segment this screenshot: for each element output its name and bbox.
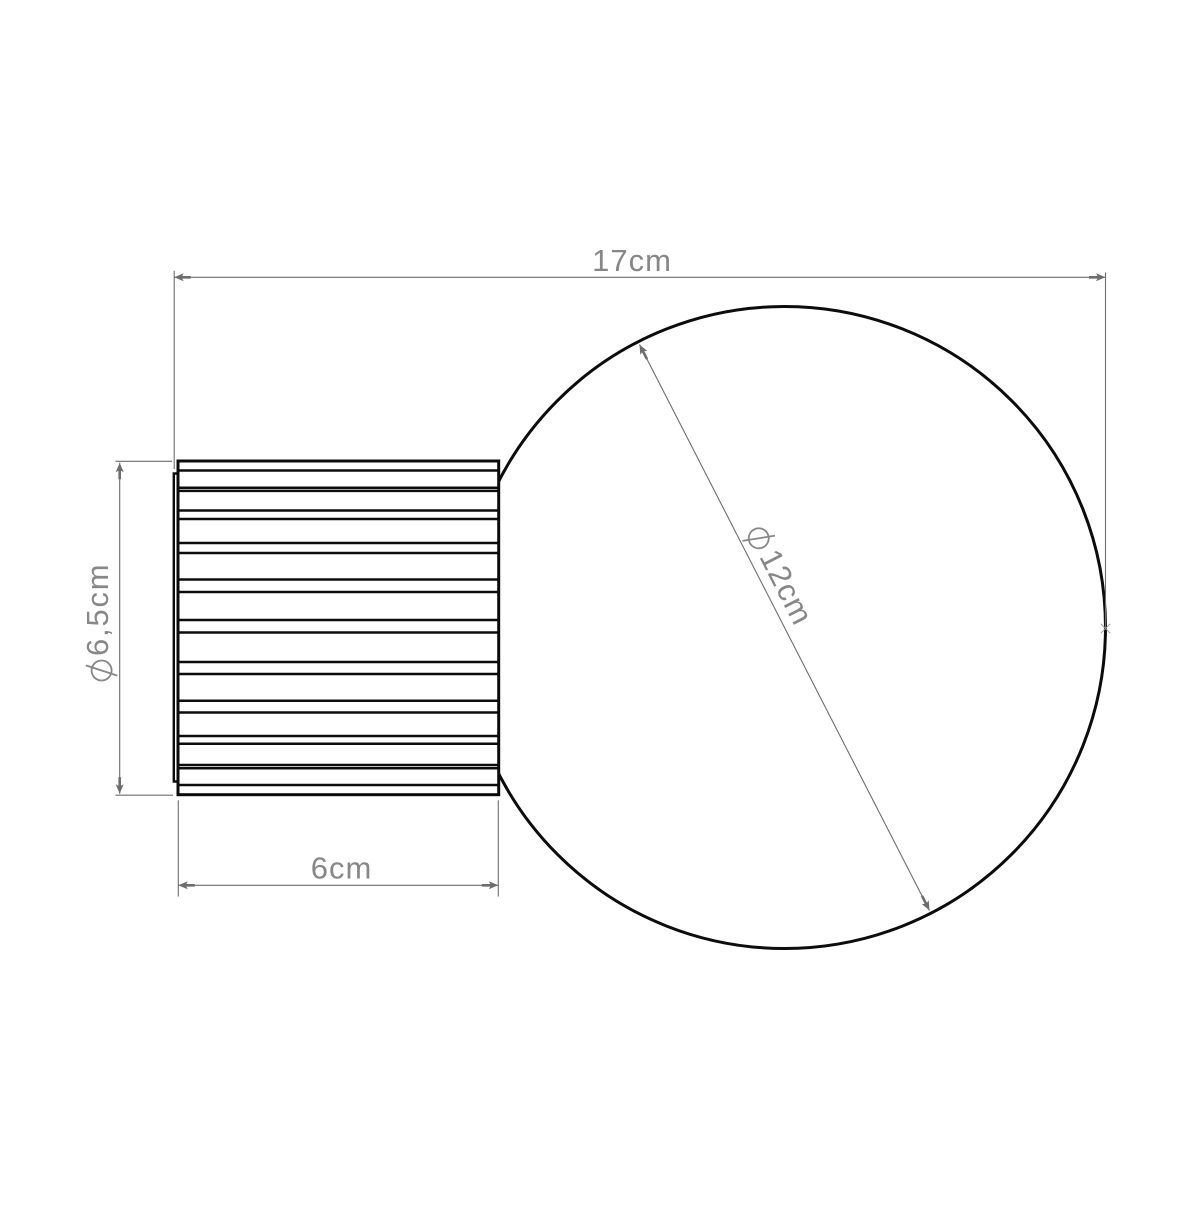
svg-text:6cm: 6cm: [311, 851, 373, 886]
svg-text:6,5cm: 6,5cm: [80, 563, 115, 656]
svg-text:17cm: 17cm: [592, 243, 672, 278]
